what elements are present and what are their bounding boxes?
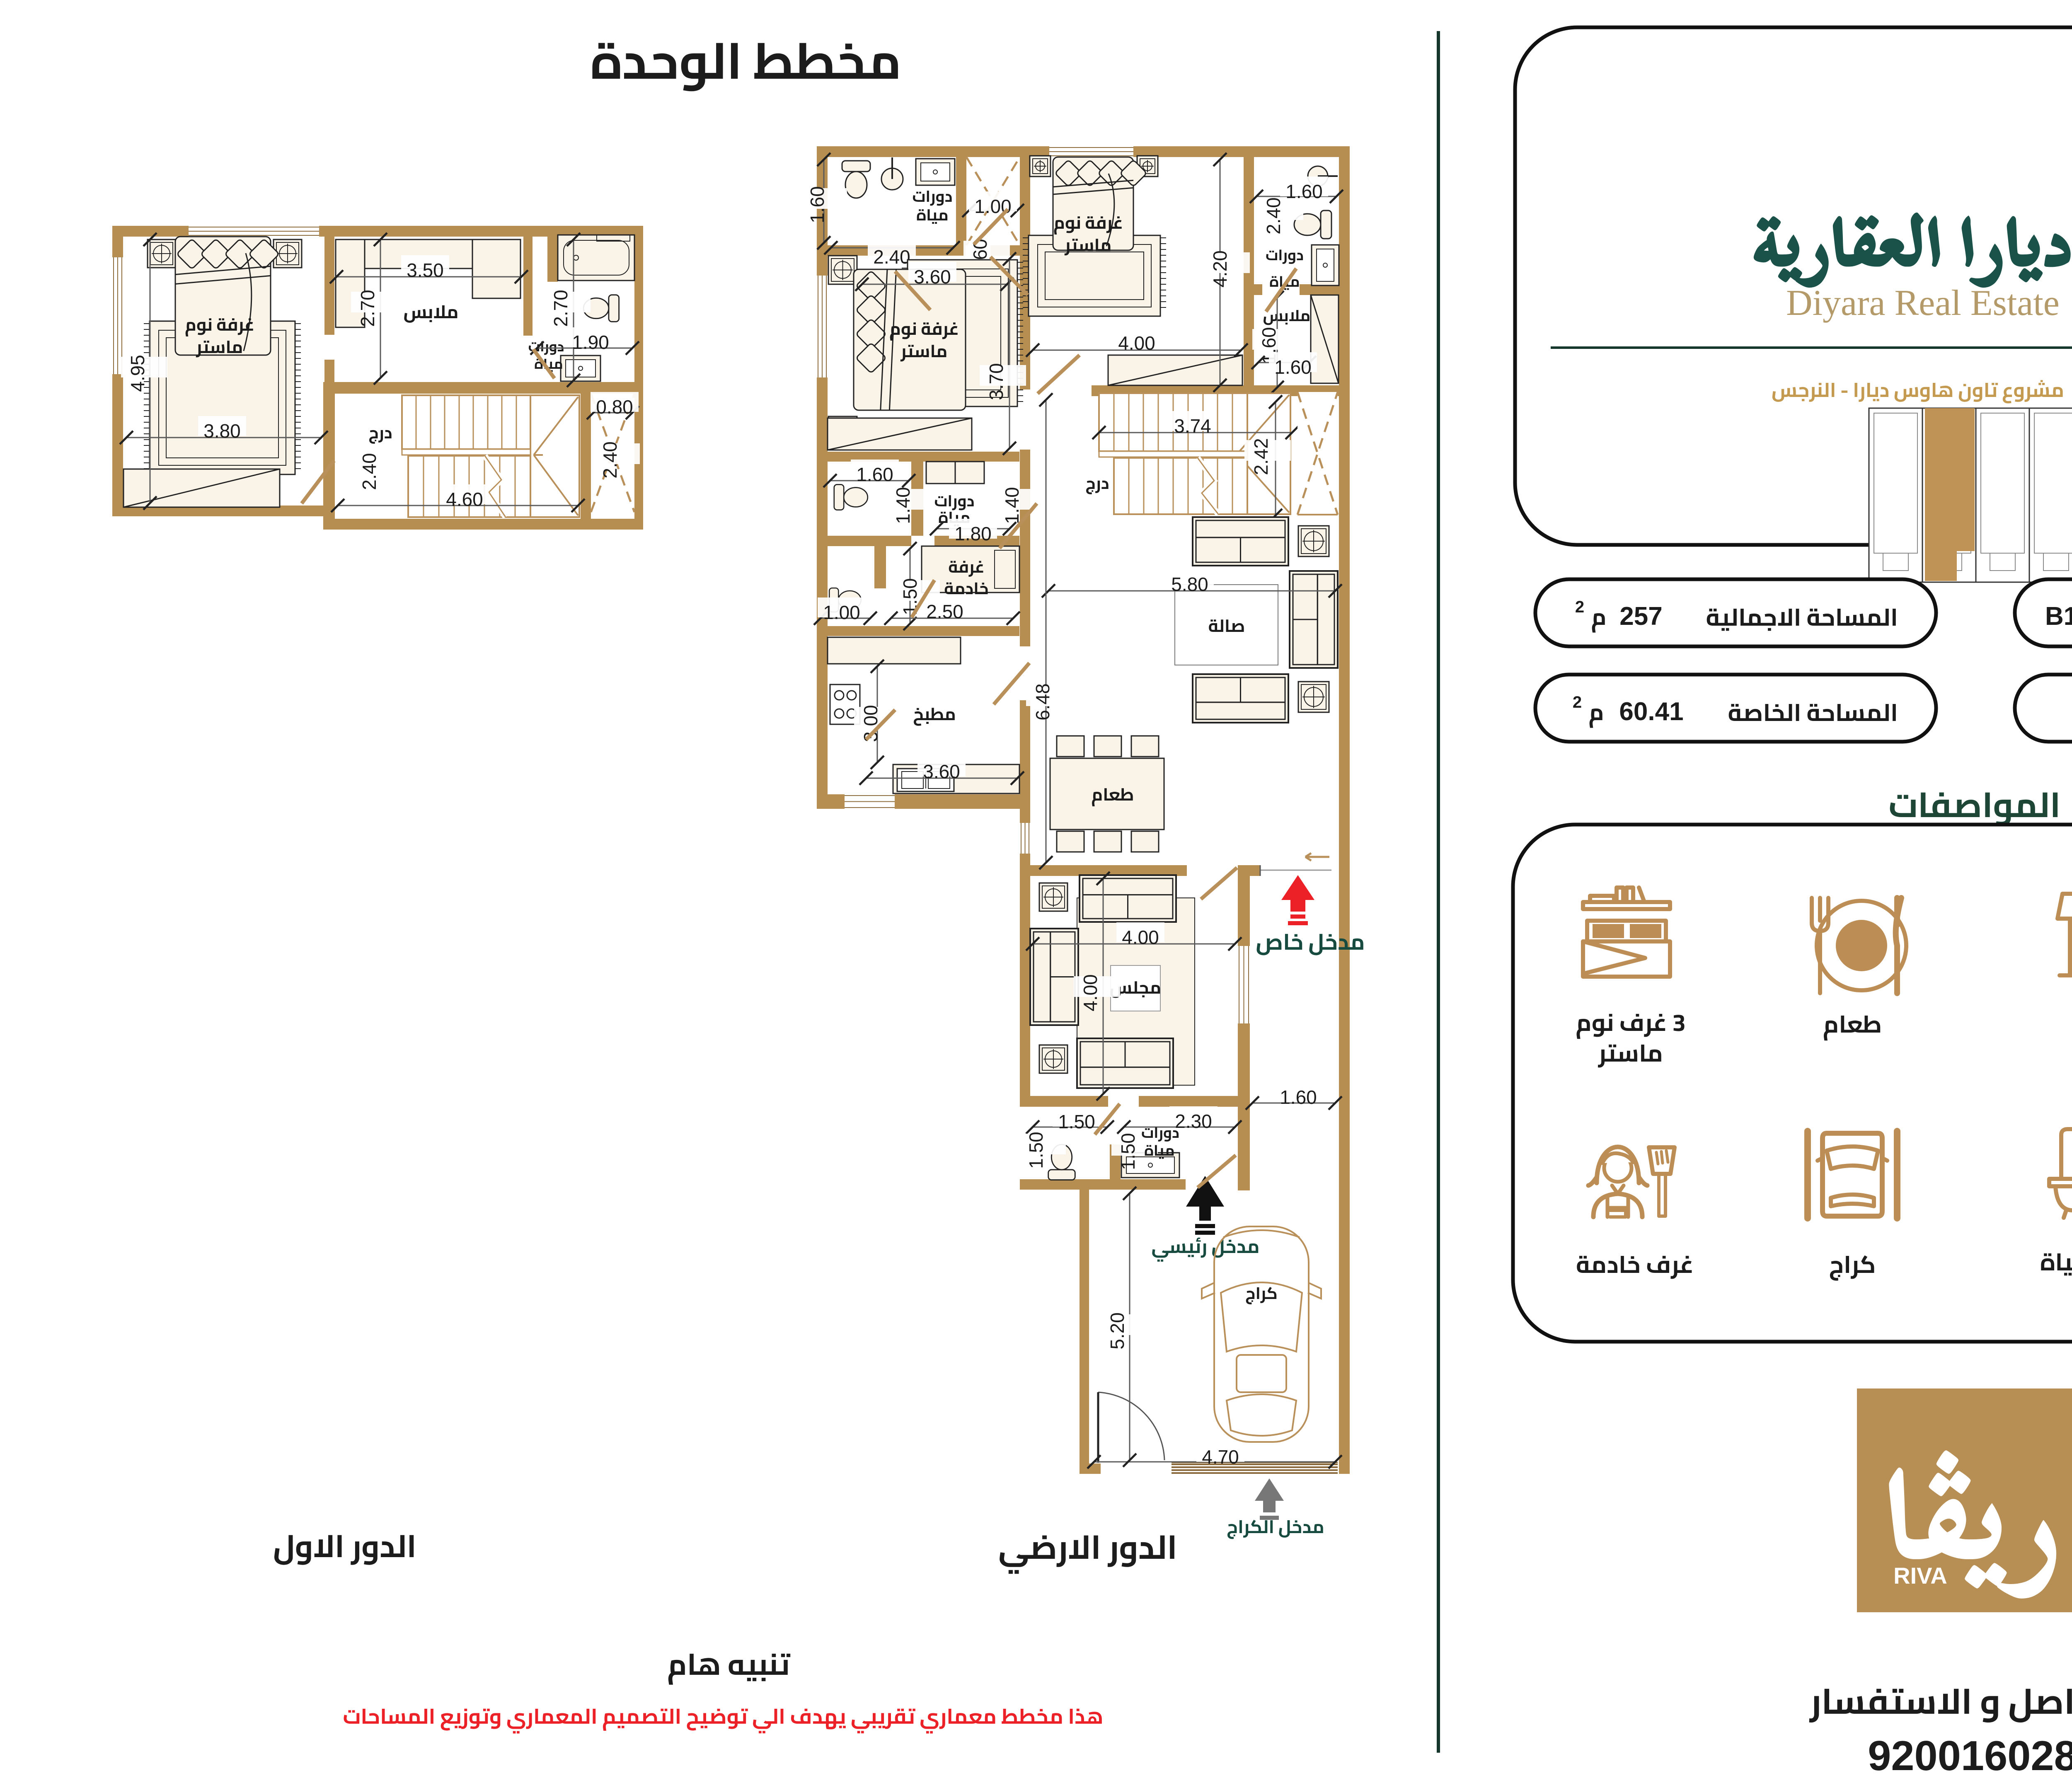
svg-text:60.41: 60.41: [1619, 697, 1683, 726]
svg-text:1.90: 1.90: [572, 331, 609, 353]
svg-text:2.40: 2.40: [599, 441, 621, 479]
svg-text:4.00: 4.00: [1118, 332, 1155, 354]
svg-text:1.50: 1.50: [1058, 1111, 1095, 1132]
svg-text:0.80: 0.80: [596, 396, 633, 418]
svg-text:2.70: 2.70: [550, 290, 571, 327]
svg-text:4.70: 4.70: [1202, 1446, 1239, 1468]
svg-text:4.00: 4.00: [1080, 974, 1101, 1011]
svg-text:2: 2: [1573, 693, 1582, 711]
svg-text:2.42: 2.42: [1250, 438, 1272, 475]
svg-text:1.60: 1.60: [806, 186, 828, 223]
svg-text:3.60: 3.60: [923, 761, 960, 782]
svg-text:3.80: 3.80: [203, 420, 241, 442]
svg-text:920016028: 920016028: [1868, 1733, 2072, 1779]
svg-text:5.80: 5.80: [1171, 573, 1208, 595]
svg-text:3.50: 3.50: [407, 259, 444, 281]
svg-text:1.60: 1.60: [1280, 1086, 1317, 1108]
svg-text:4.20: 4.20: [1209, 250, 1231, 288]
svg-text:1.50: 1.50: [1025, 1132, 1047, 1169]
svg-text:2.30: 2.30: [1175, 1110, 1212, 1132]
svg-text:2.40: 2.40: [358, 453, 380, 490]
svg-text:3.70: 3.70: [985, 363, 1007, 400]
svg-text:1.60: 1.60: [1285, 181, 1323, 202]
svg-text:4.00: 4.00: [1122, 926, 1159, 948]
svg-text:2: 2: [1575, 598, 1584, 616]
svg-text:2.70: 2.70: [357, 290, 378, 327]
svg-text:B1: B1: [2045, 602, 2072, 631]
svg-text:2.40: 2.40: [873, 246, 910, 268]
svg-text:1.80: 1.80: [954, 523, 992, 544]
svg-text:6.48: 6.48: [1032, 683, 1053, 721]
svg-text:3.74: 3.74: [1174, 415, 1211, 437]
svg-text:4.60: 4.60: [446, 489, 483, 510]
svg-text:1.60: 1.60: [1274, 356, 1312, 378]
svg-text:1.00: 1.00: [823, 602, 860, 623]
svg-text:257: 257: [1619, 602, 1662, 631]
svg-text:RIVA: RIVA: [1893, 1563, 1947, 1589]
svg-text:4.95: 4.95: [127, 355, 148, 392]
svg-text:1.60: 1.60: [856, 464, 893, 485]
svg-text:1.40: 1.40: [1001, 487, 1023, 524]
svg-text:5.20: 5.20: [1106, 1312, 1128, 1350]
svg-text:3.60: 3.60: [914, 266, 951, 288]
svg-text:2.50: 2.50: [926, 601, 963, 622]
svg-text:Diyara Real Estate: Diyara Real Estate: [1786, 283, 2060, 323]
svg-text:1.50: 1.50: [1117, 1133, 1139, 1170]
svg-text:2.40: 2.40: [1263, 197, 1284, 235]
svg-text:1.40: 1.40: [892, 487, 914, 524]
